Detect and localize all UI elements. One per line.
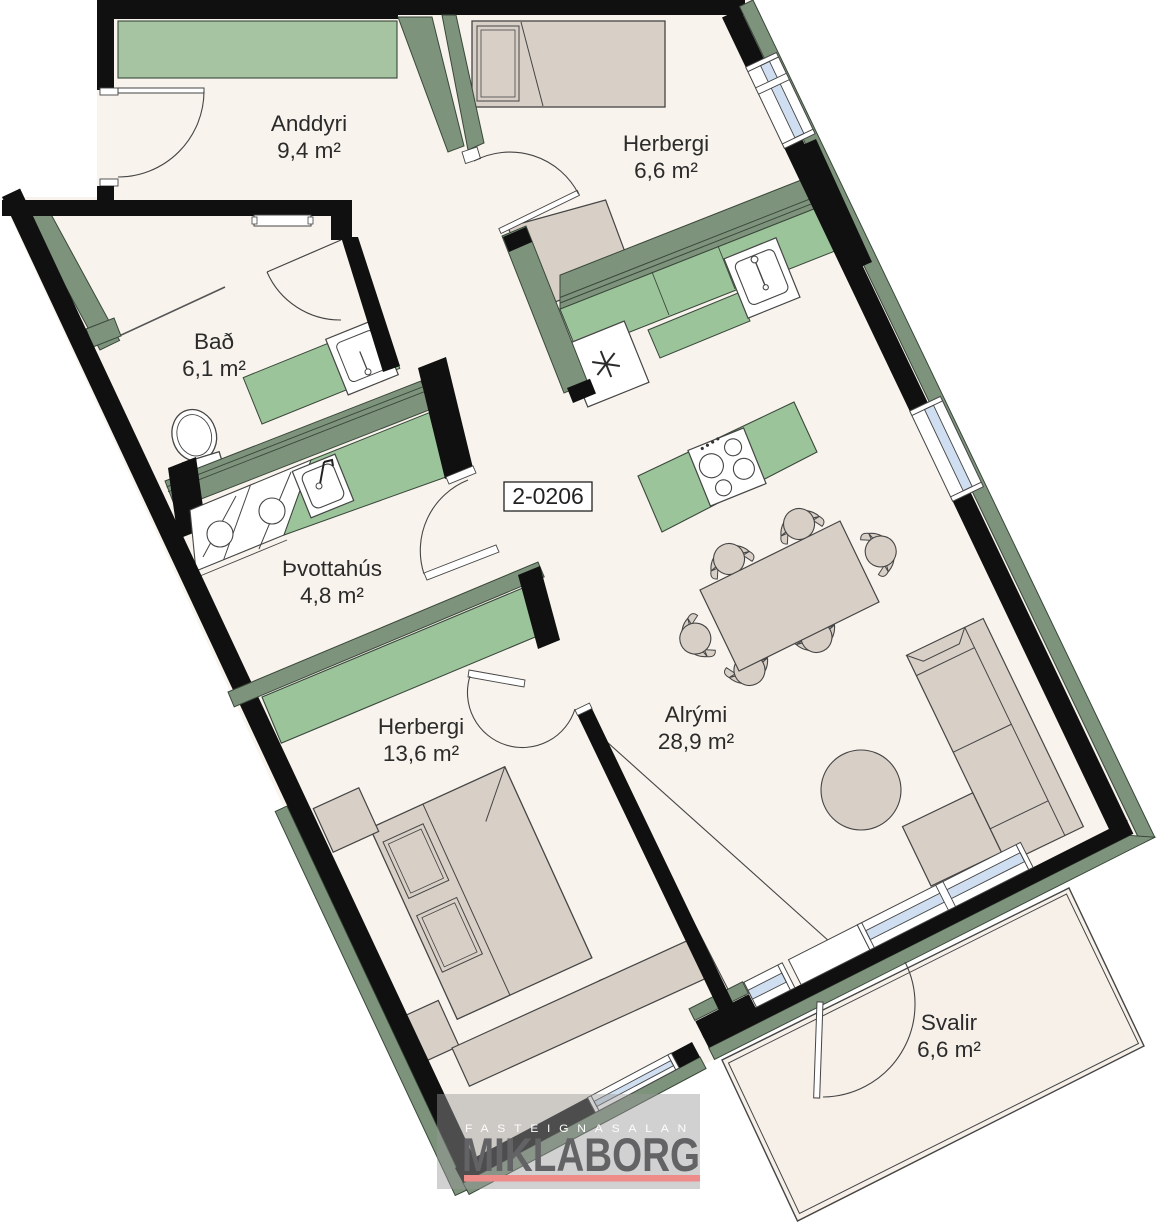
svg-text:Þvottahús: Þvottahús [282, 556, 382, 581]
svg-text:6,6 m²: 6,6 m² [634, 158, 698, 183]
svg-text:MIKLABORG: MIKLABORG [462, 1128, 700, 1181]
svg-text:2-0206: 2-0206 [512, 483, 584, 509]
svg-text:Herbergi: Herbergi [623, 131, 709, 156]
svg-text:Alrými: Alrými [665, 702, 728, 727]
svg-text:4,8 m²: 4,8 m² [300, 583, 364, 608]
svg-text:Svalir: Svalir [921, 1010, 978, 1035]
svg-text:13,6 m²: 13,6 m² [383, 741, 460, 766]
svg-text:6,1 m²: 6,1 m² [182, 356, 246, 381]
svg-text:28,9 m²: 28,9 m² [658, 729, 735, 754]
svg-text:6,6 m²: 6,6 m² [917, 1037, 981, 1062]
svg-text:Bað: Bað [194, 329, 234, 354]
svg-text:Anddyri: Anddyri [271, 111, 347, 136]
svg-text:Herbergi: Herbergi [378, 714, 464, 739]
svg-text:9,4 m²: 9,4 m² [277, 138, 341, 163]
